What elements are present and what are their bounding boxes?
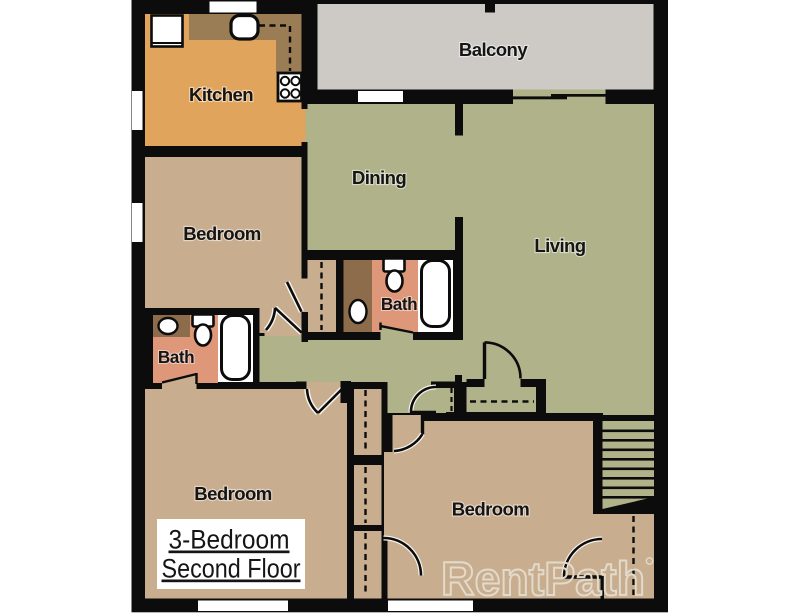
svg-text:Bath: Bath xyxy=(158,347,194,367)
svg-text:Bedroom: Bedroom xyxy=(183,223,260,244)
svg-text:Balcony: Balcony xyxy=(459,39,528,60)
svg-text:Kitchen: Kitchen xyxy=(189,84,253,105)
svg-text:Bath: Bath xyxy=(381,294,417,314)
svg-text:Bedroom: Bedroom xyxy=(452,499,529,520)
svg-text:Dining: Dining xyxy=(352,167,406,188)
svg-text:Second Floor: Second Floor xyxy=(162,554,301,584)
svg-text:RentPath: RentPath xyxy=(441,553,645,606)
svg-text:3-Bedroom: 3-Bedroom xyxy=(169,525,290,555)
svg-text:Living: Living xyxy=(534,235,585,256)
svg-text:Bedroom: Bedroom xyxy=(194,483,271,504)
